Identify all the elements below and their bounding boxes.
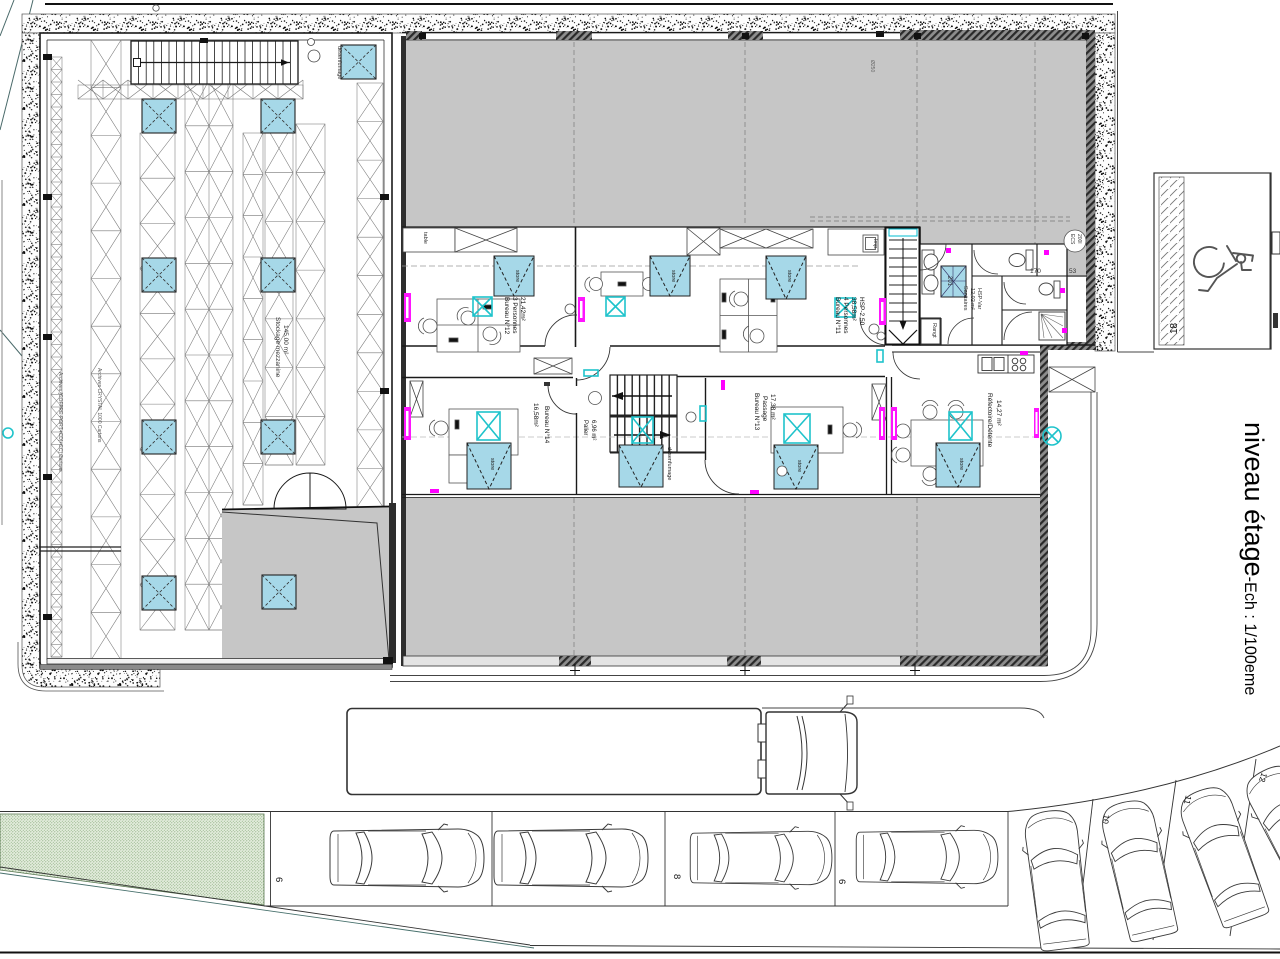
svg-text:Sanitaires: Sanitaires <box>962 286 968 311</box>
svg-text:Palier: Palier <box>582 420 588 435</box>
svg-text:HSP-2,50: HSP-2,50 <box>858 297 865 326</box>
svg-text:10: 10 <box>1100 814 1112 825</box>
svg-text:Archives CRYSTAL 1000 Cartons: Archives CRYSTAL 1000 Cartons <box>96 368 102 443</box>
svg-text:Bureau N°13: Bureau N°13 <box>753 393 761 431</box>
svg-text:17,38 m²: 17,38 m² <box>769 394 776 420</box>
svg-text:21,42m²: 21,42m² <box>519 297 526 322</box>
svg-text:Passage: Passage <box>761 396 768 422</box>
svg-text:store: store <box>489 458 495 470</box>
svg-text:Bureau N°11: Bureau N°11 <box>834 297 842 334</box>
svg-text:store: store <box>958 458 964 470</box>
svg-text:14,27 m²: 14,27 m² <box>995 400 1002 426</box>
svg-text:38,58m²: 38,58m² <box>850 297 857 322</box>
svg-text:table: table <box>422 232 428 244</box>
svg-text:201: 201 <box>946 276 952 287</box>
svg-text:Bureau N°12: Bureau N°12 <box>503 297 511 335</box>
svg-text:Archives [COFFRE-FORT+CD]+CC]: Archives [COFFRE-FORT+CD]+CC] Cartons <box>57 372 63 472</box>
svg-text:6,96 m²: 6,96 m² <box>590 420 596 440</box>
svg-text:Imp.: Imp. <box>872 239 878 250</box>
svg-text:ECS: ECS <box>1069 234 1075 245</box>
svg-text:store: store <box>670 270 676 282</box>
svg-text:53: 53 <box>1069 268 1077 275</box>
svg-text:store: store <box>514 270 520 282</box>
svg-text:6: 6 <box>273 877 284 882</box>
svg-text:Stockage mezzanine: Stockage mezzanine <box>274 317 281 378</box>
svg-text:désenfumage: désenfumage <box>336 46 342 79</box>
svg-text:store: store <box>796 460 802 472</box>
svg-text:16,58m²: 16,58m² <box>532 403 539 428</box>
svg-text:6: 6 <box>836 879 847 884</box>
svg-text:12,02 m²: 12,02 m² <box>969 288 975 310</box>
svg-text:HSP-Var: HSP-Var <box>976 288 982 309</box>
svg-text:8: 8 <box>671 874 682 879</box>
svg-text:170: 170 <box>1030 268 1041 275</box>
svg-text:Ø250: Ø250 <box>869 60 875 72</box>
svg-text:3 Personnes: 3 Personnes <box>511 297 518 334</box>
svg-text:18: 18 <box>1169 322 1180 334</box>
svg-text:4 Personnes: 4 Personnes <box>842 297 849 334</box>
svg-text:Rangt: Rangt <box>931 323 937 338</box>
svg-text:145,00 m²: 145,00 m² <box>282 325 289 355</box>
svg-text:store: store <box>786 270 792 282</box>
svg-text:Bureau N°14: Bureau N°14 <box>543 406 551 444</box>
svg-text:Réfectoire/Détente: Réfectoire/Détente <box>986 393 993 448</box>
svg-text:200l: 200l <box>1076 234 1082 243</box>
svg-text:désenfumage: désenfumage <box>666 447 672 480</box>
